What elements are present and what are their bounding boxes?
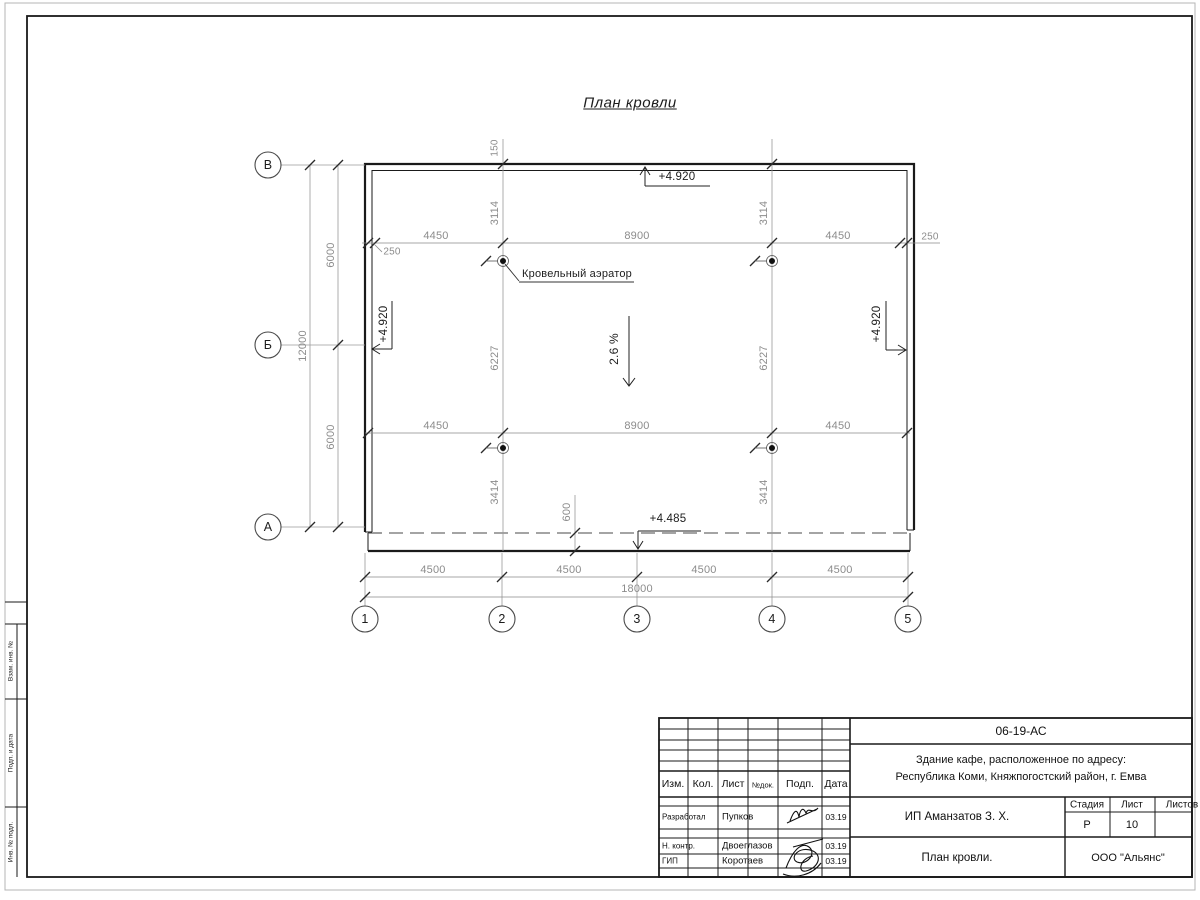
dim-col-left-1: 3114 bbox=[489, 201, 501, 225]
tb-date-2: 03.19 bbox=[825, 841, 846, 851]
tb-header-data: Дата bbox=[824, 778, 847, 790]
dim-col-right-3: 3414 bbox=[758, 479, 770, 504]
tb-sheet-title: План кровли. bbox=[922, 852, 993, 864]
dim-row1-8900: 8900 bbox=[624, 230, 649, 242]
margin-stamp-zam: Взам. инв. № bbox=[8, 641, 15, 681]
construction-lines bbox=[281, 139, 908, 606]
dim-row1-4450-left: 4450 bbox=[423, 230, 448, 242]
dim-row1-4450-right: 4450 bbox=[825, 230, 850, 242]
elevation-marks bbox=[372, 167, 906, 549]
axis-bubbles bbox=[255, 152, 921, 632]
tb-header-kol: Кол. bbox=[693, 778, 714, 790]
tb-sheets-label: Листов bbox=[1166, 800, 1199, 811]
tb-date-3: 03.19 bbox=[825, 856, 846, 866]
aerator-label: Кровельный аэратор bbox=[522, 268, 632, 280]
drawing-sheet: План кровли 150 3114 6227 3414 3114 6227… bbox=[0, 0, 1200, 900]
dim-col-right-1: 3114 bbox=[758, 201, 770, 225]
tb-address-1: Здание кафе, расположенное по адресу: bbox=[916, 754, 1126, 766]
tb-header-list: Лист bbox=[722, 778, 745, 790]
dim-bottom-3: 4500 bbox=[691, 564, 716, 576]
dim-row2-4450-left: 4450 bbox=[423, 420, 448, 432]
dim-250-leader bbox=[374, 244, 382, 252]
dim-col-right-2: 6227 bbox=[758, 345, 770, 370]
tb-role-3: ГИП bbox=[662, 857, 678, 866]
dim-row2-8900: 8900 bbox=[624, 420, 649, 432]
tb-sheet-label: Лист bbox=[1121, 800, 1143, 811]
dim-bottom-total: 18000 bbox=[621, 583, 653, 595]
dimension-ticks bbox=[305, 159, 913, 602]
tb-role-2: Н. контр. bbox=[662, 842, 695, 851]
tb-company: ООО "Альянс" bbox=[1091, 852, 1165, 864]
tb-client: ИП Аманзатов З. Х. bbox=[905, 811, 1010, 823]
drawing-title: План кровли bbox=[583, 95, 677, 112]
tb-stage-label: Стадия bbox=[1070, 800, 1104, 811]
dim-eave-offset: 600 bbox=[561, 503, 573, 522]
axis-row-v: В bbox=[264, 158, 273, 172]
dim-row2-4450-right: 4450 bbox=[825, 420, 850, 432]
elevation-right: +4.920 bbox=[871, 306, 883, 343]
elevation-top: +4.920 bbox=[659, 171, 696, 183]
tb-header-podp: Подп. bbox=[786, 778, 814, 790]
axis-col-3: 3 bbox=[633, 612, 640, 626]
tb-name-3: Коротаев bbox=[722, 856, 763, 867]
axis-col-1: 1 bbox=[361, 612, 368, 626]
roof-outline bbox=[365, 164, 914, 551]
dim-row1-250-right: 250 bbox=[921, 232, 938, 243]
dim-bottom-4: 4500 bbox=[827, 564, 852, 576]
dim-side-total: 12000 bbox=[297, 330, 309, 362]
tb-header-ndok: №док. bbox=[752, 781, 774, 790]
margin-stamp-inv: Инв. № подл. bbox=[8, 822, 15, 863]
dim-col-left-3: 3414 bbox=[489, 479, 501, 504]
signature-strokes bbox=[783, 808, 823, 876]
axis-col-2: 2 bbox=[498, 612, 505, 626]
elevation-left: +4.920 bbox=[378, 306, 390, 343]
dim-overhang: 150 bbox=[490, 139, 501, 156]
tb-header-izm: Изм. bbox=[662, 778, 685, 790]
dim-side-half-1: 6000 bbox=[325, 242, 337, 267]
dimension-lines bbox=[362, 243, 940, 597]
margin-stamp-podp: Подп. и дата bbox=[8, 734, 15, 772]
axis-col-5: 5 bbox=[904, 612, 911, 626]
slope-arrow bbox=[623, 316, 635, 386]
slope-label: 2.6 % bbox=[607, 333, 621, 365]
tb-name-1: Пупков bbox=[722, 812, 753, 823]
elevation-eave: +4.485 bbox=[650, 513, 687, 525]
dim-side-half-2: 6000 bbox=[325, 424, 337, 449]
dim-bottom-1: 4500 bbox=[420, 564, 445, 576]
dim-row1-250-left: 250 bbox=[383, 247, 400, 258]
tb-sheet-number: 10 bbox=[1126, 819, 1138, 831]
tb-role-1: Разработал bbox=[662, 813, 706, 822]
tb-address-2: Республика Коми, Княжпогостский район, г… bbox=[895, 771, 1146, 783]
dim-col-left-2: 6227 bbox=[489, 345, 501, 370]
tb-stage-value: Р bbox=[1083, 819, 1090, 831]
axis-row-b: Б bbox=[264, 338, 272, 352]
dim-bottom-2: 4500 bbox=[556, 564, 581, 576]
tb-date-1: 03.19 bbox=[825, 812, 846, 822]
tb-doc-code: 06-19-АС bbox=[995, 724, 1046, 738]
axis-row-a: А bbox=[264, 520, 273, 534]
axis-col-4: 4 bbox=[768, 612, 775, 626]
tb-name-2: Двоеглазов bbox=[722, 841, 773, 852]
